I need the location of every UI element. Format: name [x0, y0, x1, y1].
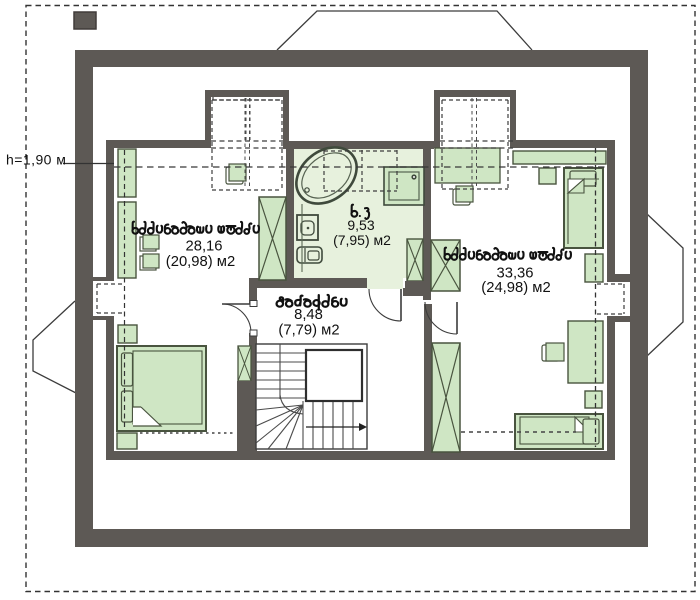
- svg-text:(20,98) м2: (20,98) м2: [166, 254, 235, 270]
- svg-text:h=1,90 м: h=1,90 м: [6, 152, 66, 168]
- svg-text:28,16: 28,16: [185, 239, 222, 255]
- svg-text:(24,98) м2: (24,98) м2: [481, 280, 550, 296]
- svg-text:9,53: 9,53: [347, 217, 374, 233]
- svg-text:8,48: 8,48: [294, 307, 323, 323]
- svg-text:(7,79) м2: (7,79) м2: [278, 323, 339, 339]
- svg-text:(7,95) м2: (7,95) м2: [333, 232, 391, 248]
